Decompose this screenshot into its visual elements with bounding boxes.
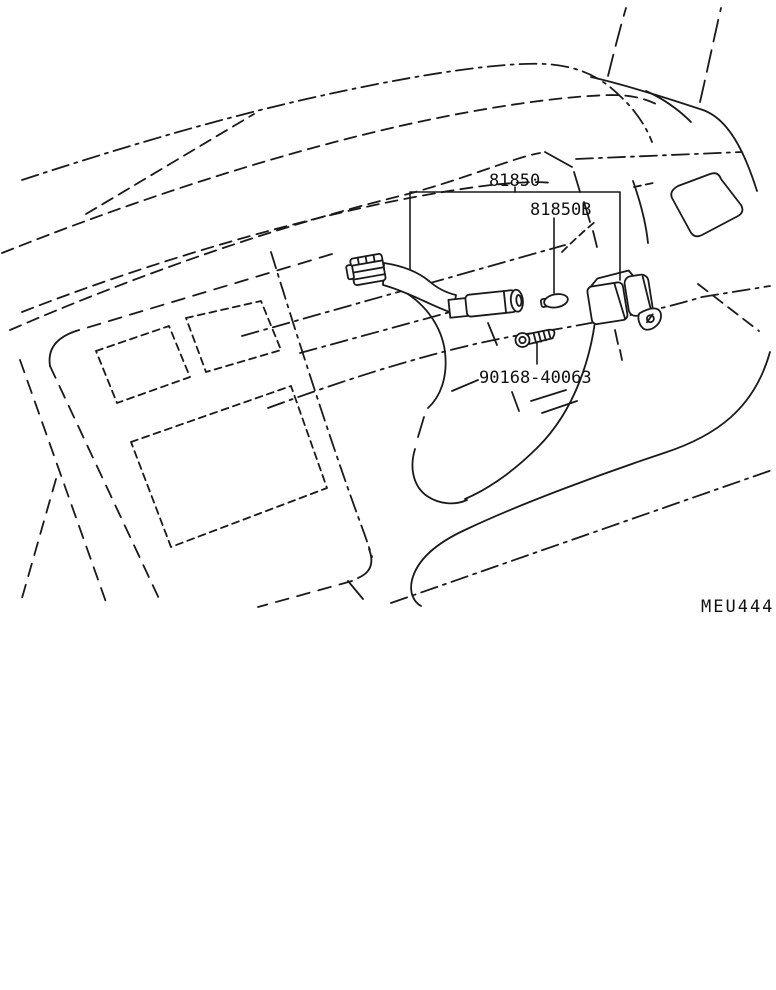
page-background bbox=[0, 0, 776, 990]
harness-part-label[interactable]: 81850 bbox=[489, 171, 540, 191]
figure-code-label: MEU444 bbox=[701, 597, 774, 617]
sensor-body bbox=[587, 282, 629, 325]
screw-part-label[interactable]: 90168-40063 bbox=[479, 368, 592, 388]
parts-diagram-page: 81850 81850B 90168-40063 MEU444 bbox=[0, 0, 776, 990]
grommet-part-label[interactable]: 81850B bbox=[530, 200, 591, 220]
parts-diagram-canvas: 81850 81850B 90168-40063 MEU444 bbox=[0, 0, 776, 990]
